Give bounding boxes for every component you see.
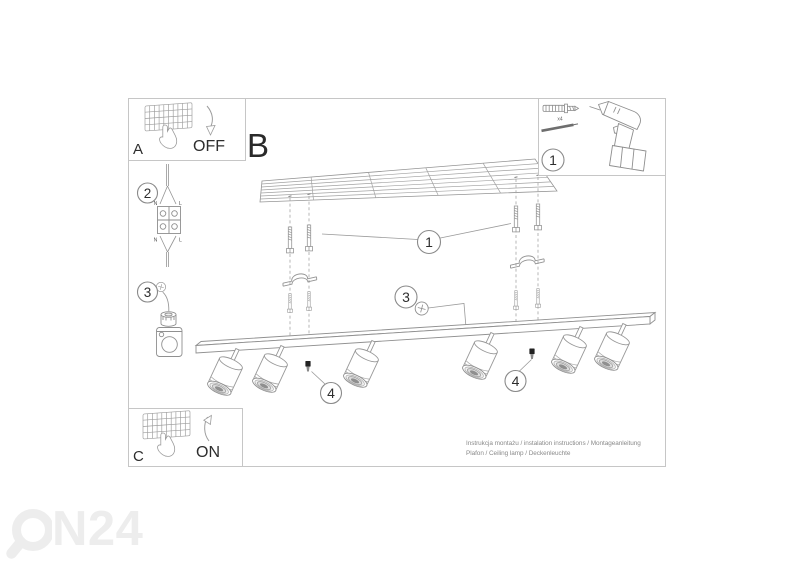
callout-anchors-number: 1	[425, 234, 433, 250]
step-wiring-number: 2	[144, 186, 152, 201]
callout-ground-number: 3	[402, 289, 410, 305]
ceiling-panel	[260, 159, 557, 202]
callout-screw-left-number: 4	[327, 385, 335, 401]
step-bracket-number: 3	[144, 285, 152, 300]
step-bracket: 3	[138, 281, 183, 356]
watermark-text: N24	[52, 502, 143, 556]
box-switch-off: A OFF	[129, 99, 246, 161]
callout-screw-left: 4	[305, 361, 341, 404]
caption: Instrukcja montażu / instalation instruc…	[466, 439, 641, 458]
caption-line-1: Instrukcja montażu / instalation instruc…	[466, 439, 641, 449]
box-a-label: A	[133, 141, 143, 158]
step-wiring: N L N L 2	[138, 164, 183, 267]
ground-screw-icon	[414, 301, 430, 317]
terminal-l-top: L	[179, 201, 182, 207]
callout-screw-right: 4	[505, 349, 535, 392]
switch-on-state: ON	[196, 444, 220, 461]
magnifier-o-icon	[6, 502, 52, 560]
callout-ground: 3	[395, 286, 466, 328]
box-c-label: C	[133, 448, 144, 465]
callout-screw-right-number: 4	[512, 373, 520, 389]
terminal-block-icon	[158, 207, 181, 234]
box-parts-number: 1	[549, 152, 557, 168]
rail-clamp-icons	[282, 255, 544, 286]
box-switch-on: C ON	[129, 409, 243, 467]
anchor-quantity: x4	[557, 117, 563, 123]
terminal-n-bottom: N	[154, 238, 158, 244]
adjust-screw-icon-left	[305, 361, 310, 372]
box-parts: x4 1	[539, 99, 666, 176]
ceiling-bracket-icon	[157, 312, 183, 357]
panel-b-label: B	[247, 127, 269, 164]
caption-line-2: Plafon / Ceiling lamp / Deckenleuchte	[466, 449, 641, 459]
installation-diagram: 1 3 4	[0, 0, 792, 566]
on24-watermark: N24	[6, 502, 143, 560]
callout-anchors: 1	[322, 224, 511, 254]
switch-off-state: OFF	[193, 138, 225, 155]
adjust-screw-icon-right	[529, 349, 534, 360]
instruction-sheet: 1 3 4	[0, 0, 792, 566]
terminal-n-top: N	[154, 201, 158, 207]
spotlight-3	[342, 336, 385, 390]
terminal-l-bottom: L	[179, 238, 182, 244]
assembly-guide-lines	[290, 177, 538, 339]
